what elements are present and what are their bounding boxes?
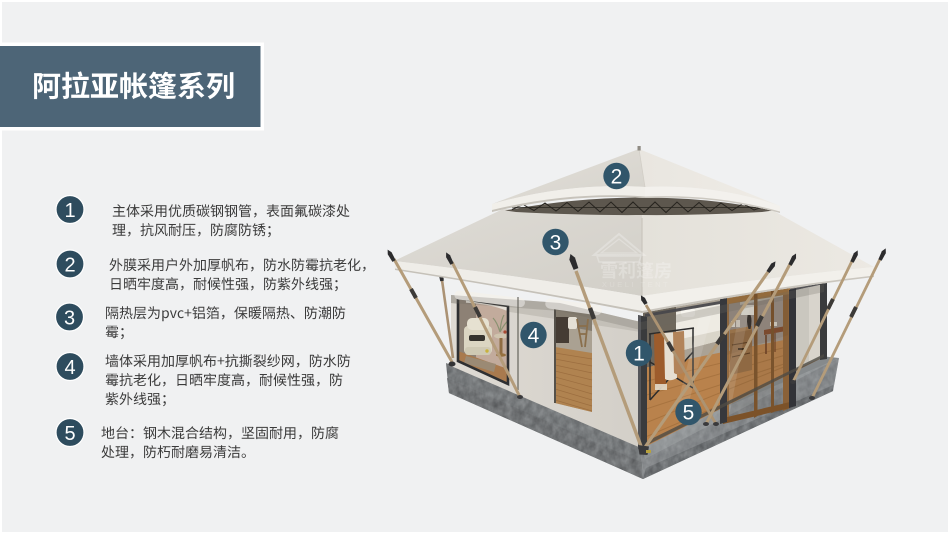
svg-text:4: 4 (64, 357, 75, 379)
svg-text:3: 3 (550, 232, 562, 255)
svg-text:4: 4 (528, 325, 540, 348)
svg-text:1: 1 (633, 343, 645, 366)
svg-text:3: 3 (64, 307, 75, 329)
svg-text:1: 1 (64, 200, 75, 222)
svg-text:5: 5 (64, 423, 75, 445)
svg-text:XUELI TENT: XUELI TENT (602, 280, 670, 289)
svg-text:2: 2 (64, 254, 75, 276)
svg-text:2: 2 (611, 166, 623, 189)
svg-text:5: 5 (683, 402, 695, 425)
